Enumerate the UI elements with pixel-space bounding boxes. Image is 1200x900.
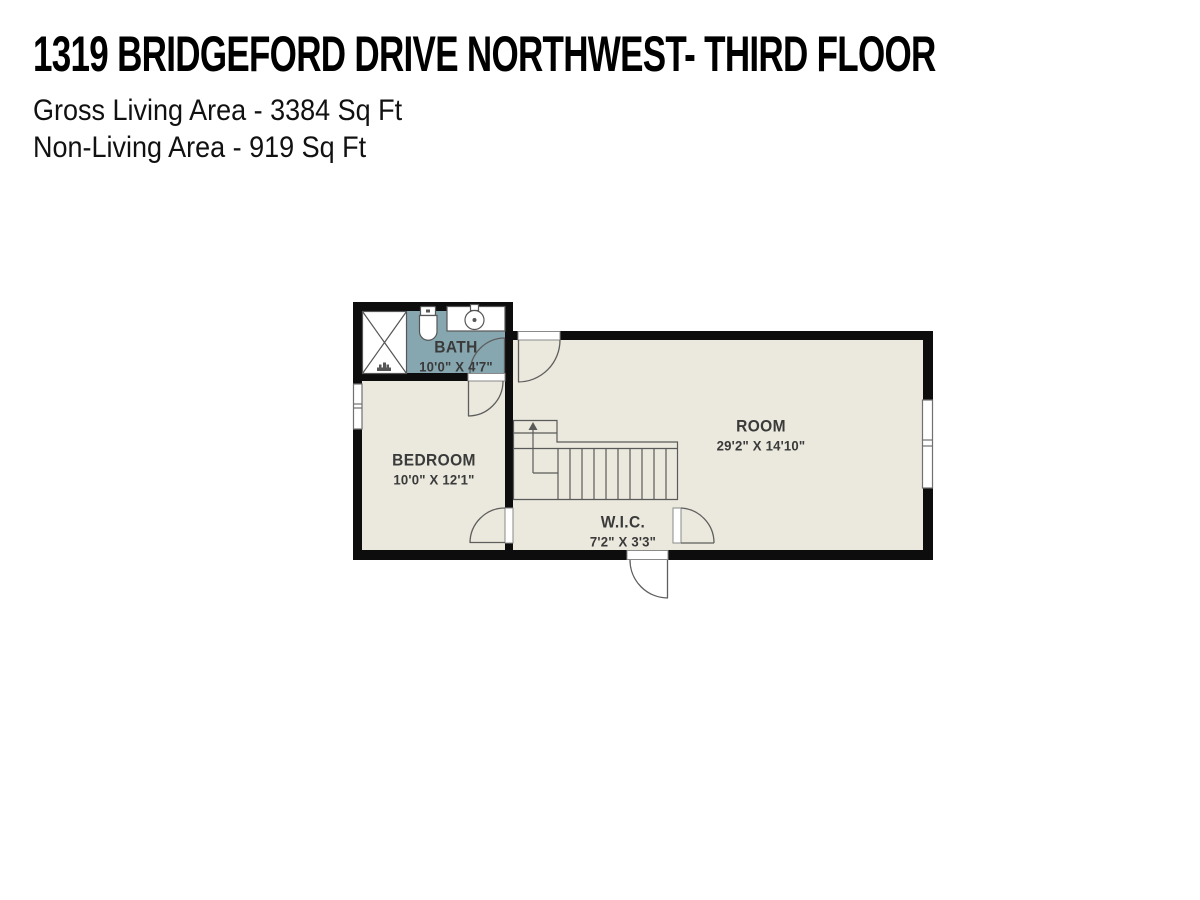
room-name: W.I.C. <box>590 513 656 533</box>
closet-floor <box>513 508 567 550</box>
room-dimensions: 10'0" X 12'1" <box>392 471 476 490</box>
floor-plan-page: 1319 BRIDGEFORD DRIVE NORTHWEST- THIRD F… <box>0 0 1200 900</box>
room-label-bath: BATH 10'0" X 4'7" <box>419 338 493 377</box>
exterior-door <box>630 560 668 598</box>
room-window <box>923 400 933 488</box>
floor-plan-drawing <box>0 0 1200 900</box>
floor-plan: BATH 10'0" X 4'7" BEDROOM 10'0" X 12'1" … <box>0 0 1200 900</box>
room-name: BATH <box>419 338 493 358</box>
room-top-door-opening <box>518 332 560 341</box>
bedroom-window <box>354 384 363 429</box>
room-name: ROOM <box>717 417 806 437</box>
sink-icon <box>447 305 505 332</box>
shower-icon <box>363 312 407 374</box>
room-dimensions: 29'2" X 14'10" <box>717 437 806 456</box>
room-dimensions: 10'0" X 4'7" <box>419 358 493 377</box>
closet-door-opening <box>505 508 513 543</box>
room-dimensions: 7'2" X 3'3" <box>590 533 656 552</box>
toilet-icon <box>420 307 438 341</box>
room-label-bedroom: BEDROOM 10'0" X 12'1" <box>392 451 476 490</box>
exterior-door-opening <box>627 551 668 560</box>
room-label-room: ROOM 29'2" X 14'10" <box>717 417 806 456</box>
wic-door-opening <box>673 508 681 543</box>
room-label-wic: W.I.C. 7'2" X 3'3" <box>590 513 656 552</box>
room-name: BEDROOM <box>392 451 476 471</box>
